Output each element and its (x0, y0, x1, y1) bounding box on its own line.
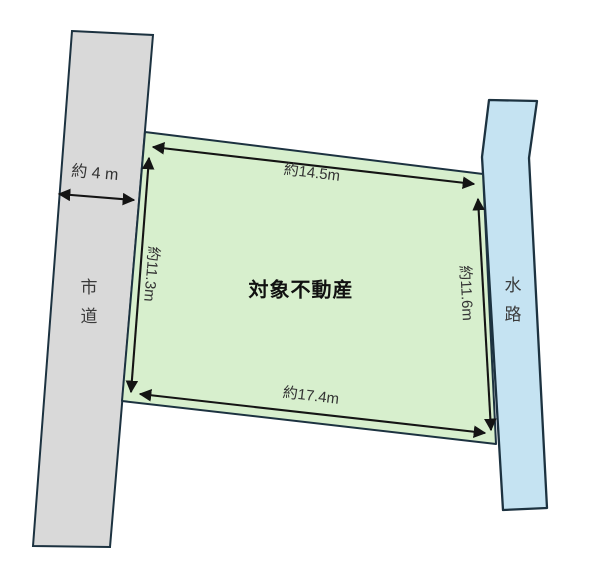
dimension-label-right: 約11.6m (455, 265, 479, 322)
waterway-label: 水路 (499, 276, 524, 334)
city-road-label: 市道 (75, 278, 100, 336)
subject-property-label: 対象不動産 (249, 274, 354, 303)
road-width-label: 約 4 m (70, 157, 119, 185)
site-plan-diagram: 約14.5m 約11.3m 約11.6m 約17.4m 約 4 m 対象不動産 … (0, 0, 611, 566)
